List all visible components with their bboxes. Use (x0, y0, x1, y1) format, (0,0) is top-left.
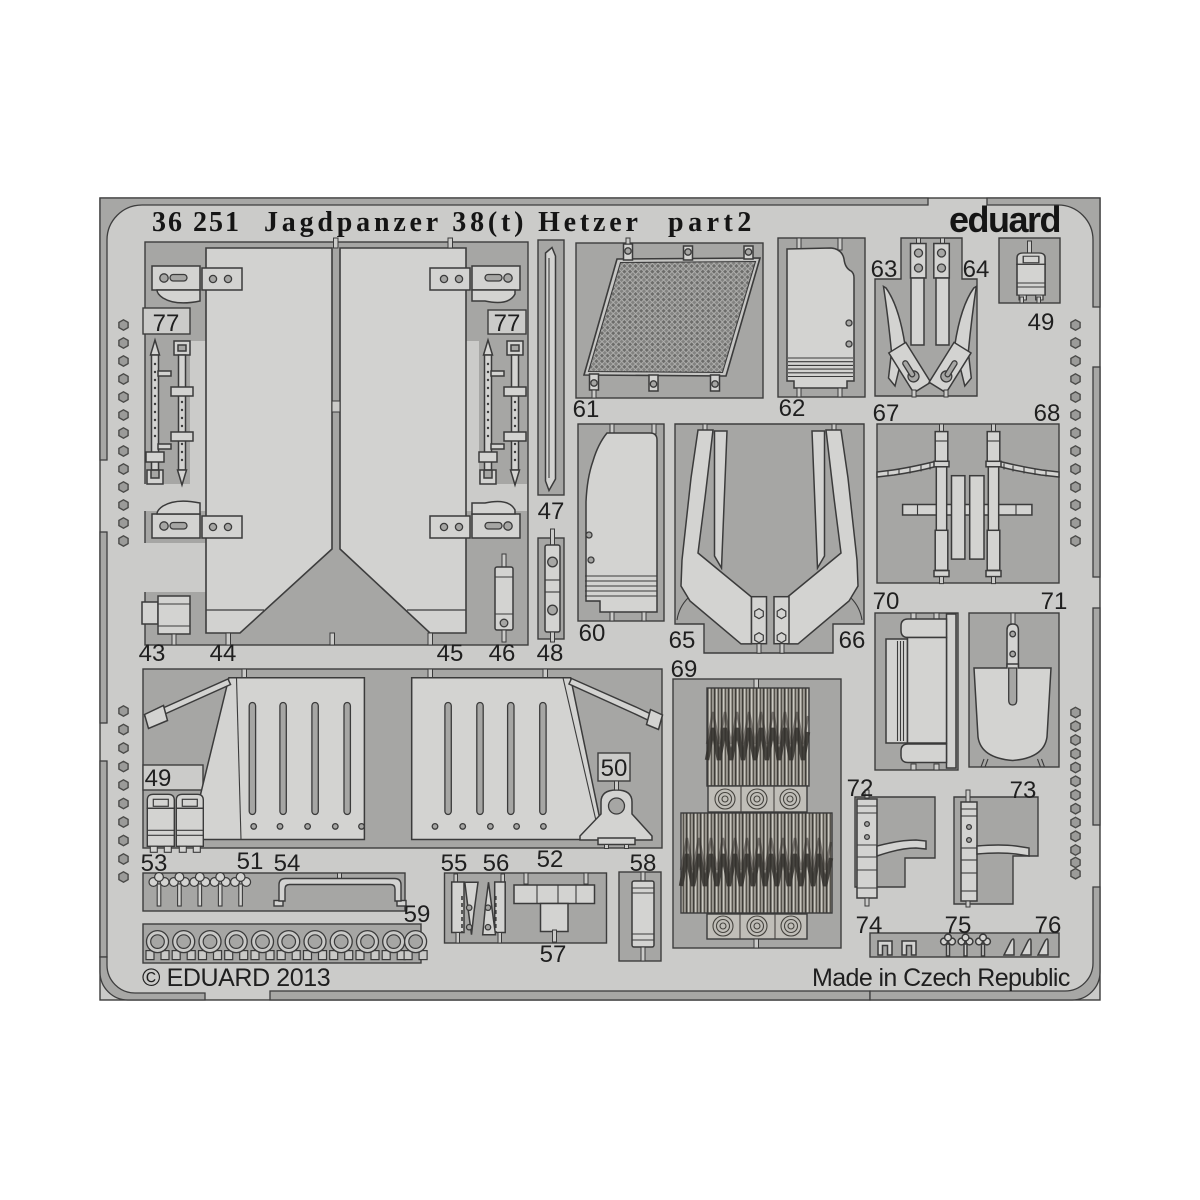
svg-text:Jagdpanzer 38(t) Hetzer: Jagdpanzer 38(t) Hetzer (264, 207, 642, 238)
svg-text:70: 70 (873, 588, 900, 615)
svg-text:50: 50 (601, 755, 628, 782)
svg-text:77: 77 (494, 310, 521, 337)
svg-text:69: 69 (671, 656, 698, 683)
svg-text:74: 74 (856, 912, 883, 939)
svg-text:65: 65 (669, 627, 696, 654)
svg-text:73: 73 (1010, 777, 1037, 804)
svg-text:44: 44 (210, 640, 237, 667)
svg-text:Made in Czech Republic: Made in Czech Republic (812, 964, 1070, 992)
svg-text:75: 75 (945, 912, 972, 939)
svg-text:72: 72 (847, 775, 874, 802)
svg-text:60: 60 (579, 620, 606, 647)
svg-text:54: 54 (274, 850, 301, 877)
svg-text:43: 43 (139, 640, 166, 667)
svg-text:53: 53 (141, 850, 168, 877)
svg-text:66: 66 (839, 627, 866, 654)
svg-text:49: 49 (145, 765, 172, 792)
svg-text:64: 64 (963, 256, 990, 283)
svg-text:58: 58 (630, 850, 657, 877)
svg-text:67: 67 (873, 400, 900, 427)
svg-text:77: 77 (153, 310, 180, 337)
svg-text:47: 47 (538, 498, 565, 525)
svg-text:51: 51 (237, 848, 264, 875)
svg-text:76: 76 (1035, 912, 1062, 939)
svg-text:48: 48 (537, 640, 564, 667)
svg-text:© EDUARD 2013: © EDUARD 2013 (142, 964, 330, 992)
svg-text:part2: part2 (668, 207, 756, 238)
svg-text:eduard: eduard (949, 199, 1060, 240)
svg-text:55: 55 (441, 850, 468, 877)
svg-text:71: 71 (1041, 588, 1068, 615)
svg-text:63: 63 (871, 256, 898, 283)
svg-text:56: 56 (483, 850, 510, 877)
svg-text:59: 59 (404, 901, 431, 928)
svg-text:46: 46 (489, 640, 516, 667)
svg-text:36 251: 36 251 (152, 207, 241, 238)
svg-text:52: 52 (537, 846, 564, 873)
svg-text:45: 45 (437, 640, 464, 667)
svg-text:62: 62 (779, 395, 806, 422)
svg-text:68: 68 (1034, 400, 1061, 427)
svg-text:49: 49 (1028, 309, 1055, 336)
svg-text:57: 57 (540, 941, 567, 968)
svg-text:61: 61 (573, 396, 600, 423)
